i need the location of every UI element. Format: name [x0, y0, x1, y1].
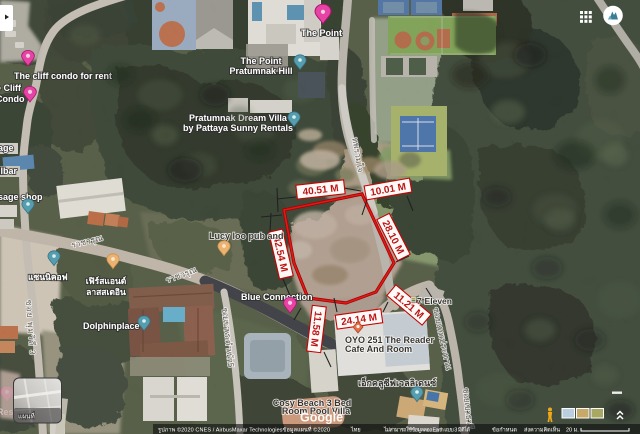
svg-text:ส่งความคิดเห็น: ส่งความคิดเห็น — [524, 426, 560, 434]
svg-text:20 ม.: 20 ม. — [566, 428, 579, 434]
svg-text:ไทย: ไทย — [350, 427, 361, 434]
svg-text:แผนที่: แผนที่ — [18, 412, 35, 421]
svg-text:ไม่สามารถใช้ข้อมูลลอง Earth แบ: ไม่สามารถใช้ข้อมูลลอง Earth แบบ 3 มิติได… — [383, 427, 470, 434]
svg-text:รูปภาพ ©2020 CNES / AirbusMaxa: รูปภาพ ©2020 CNES / AirbusMaxar Technolo… — [158, 426, 330, 434]
svg-text:ข้อกำหนด: ข้อกำหนด — [492, 427, 517, 434]
svg-text:Google: Google — [300, 411, 343, 425]
